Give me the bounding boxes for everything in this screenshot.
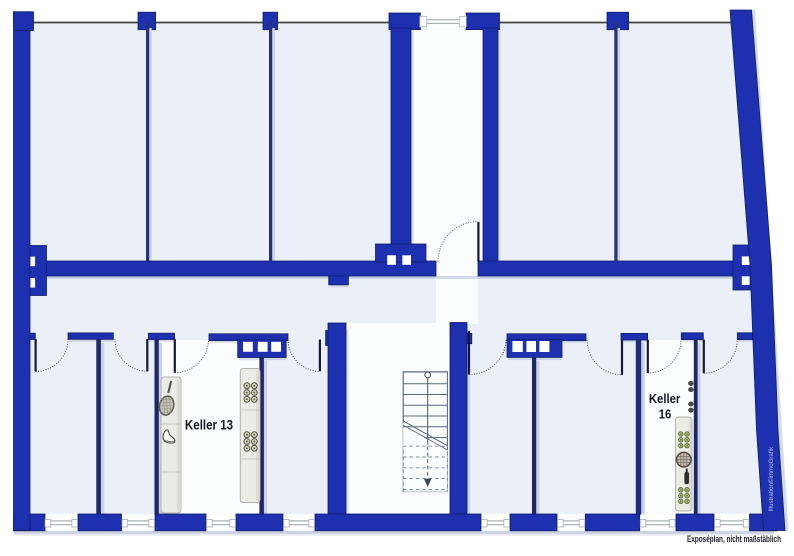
svg-text:Keller: Keller [649, 391, 681, 406]
svg-text:16: 16 [659, 407, 672, 422]
svg-text:Exposéplan, nicht maßstäblich: Exposéplan, nicht maßstäblich [687, 534, 781, 544]
svg-text:Keller 13: Keller 13 [185, 418, 233, 433]
svg-text:Illustration©immoGrafik: Illustration©immoGrafik [768, 446, 775, 512]
